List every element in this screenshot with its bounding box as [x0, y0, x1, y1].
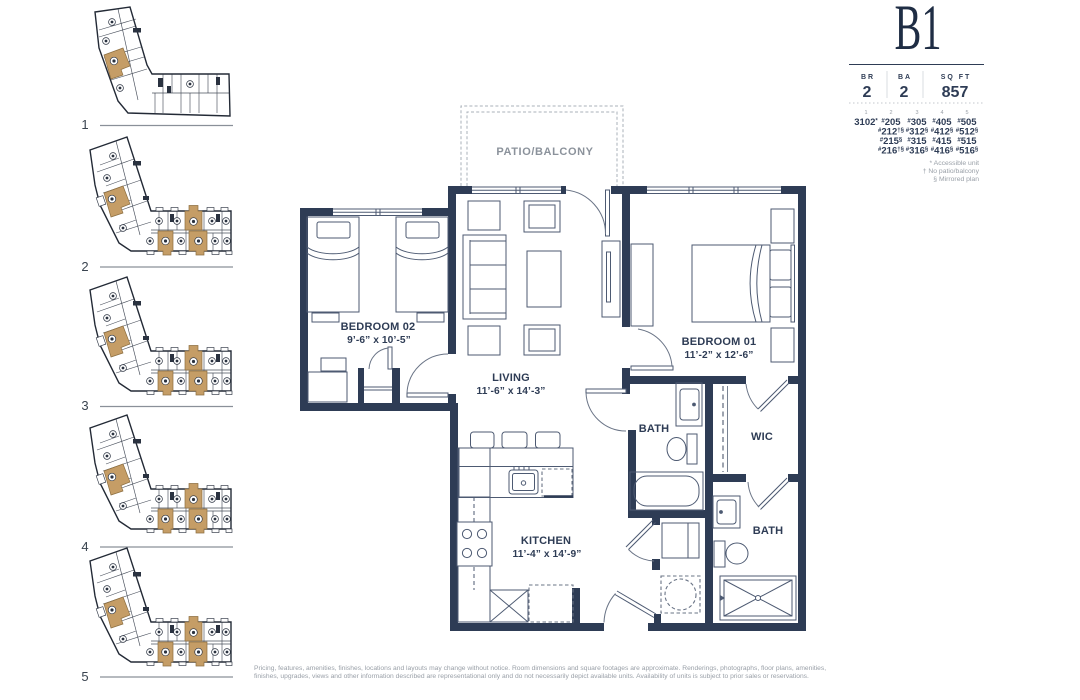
svg-text:1: 1: [81, 117, 88, 132]
svg-text:* Accessible unit: * Accessible unit: [930, 160, 980, 167]
svg-text:WIC: WIC: [751, 431, 773, 443]
svg-text:LIVING: LIVING: [492, 372, 530, 384]
svg-text:5: 5: [81, 669, 88, 684]
svg-text:4: 4: [940, 110, 943, 116]
svg-text:BEDROOM 02: BEDROOM 02: [341, 321, 416, 333]
svg-text:finishes, upgrades, views and: finishes, upgrades, views and other info…: [254, 673, 809, 680]
svg-text:2: 2: [900, 84, 909, 101]
svg-text:3102*: 3102*: [854, 117, 878, 128]
svg-text:BATH: BATH: [639, 423, 670, 435]
svg-text:11’-6” x 14’-3”: 11’-6” x 14’-3”: [477, 386, 546, 397]
svg-text:SQ FT: SQ FT: [941, 74, 972, 81]
svg-text:BA: BA: [898, 74, 912, 81]
svg-text:3: 3: [915, 110, 918, 116]
svg-text:BEDROOM 01: BEDROOM 01: [682, 336, 757, 348]
svg-text:2: 2: [81, 259, 88, 274]
svg-text:B1: B1: [894, 0, 941, 63]
svg-text:Pricing, features, amenities,: Pricing, features, amenities, finishes, …: [254, 665, 826, 672]
svg-text:PATIO/BALCONY: PATIO/BALCONY: [496, 146, 593, 158]
svg-text:1: 1: [864, 110, 867, 116]
svg-text:2: 2: [863, 84, 872, 101]
svg-text:† No patio/balcony: † No patio/balcony: [923, 168, 980, 175]
svg-text:§ Mirrored plan: § Mirrored plan: [933, 176, 979, 183]
svg-text:11’-4” x 14’-9”: 11’-4” x 14’-9”: [513, 549, 582, 560]
svg-text:9’-6” x 10’-5”: 9’-6” x 10’-5”: [347, 335, 411, 346]
svg-text:5: 5: [965, 110, 968, 116]
svg-text:4: 4: [81, 539, 88, 554]
svg-text:857: 857: [942, 84, 969, 101]
svg-text:3: 3: [81, 398, 88, 413]
svg-text:11’-2” x 12’-6”: 11’-2” x 12’-6”: [685, 350, 754, 361]
svg-text:2: 2: [889, 110, 892, 116]
svg-text:BATH: BATH: [753, 525, 784, 537]
svg-text:KITCHEN: KITCHEN: [521, 535, 571, 547]
svg-text:BR: BR: [861, 74, 875, 81]
